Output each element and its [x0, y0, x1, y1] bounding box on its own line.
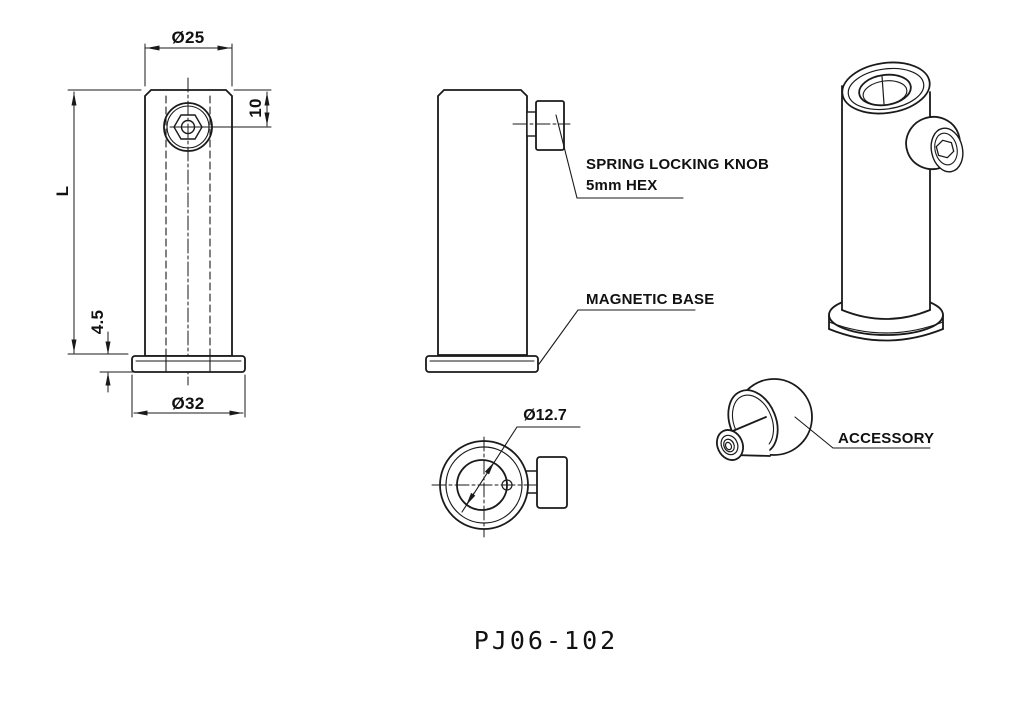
top-view	[432, 427, 580, 537]
dim-post-length: L	[53, 171, 73, 211]
accessory-view	[712, 379, 930, 464]
side-view	[426, 90, 695, 372]
front-view	[68, 44, 271, 417]
dim-base-thickness: 4.5	[88, 300, 108, 344]
callout-accessory: ACCESSORY	[838, 430, 934, 447]
technical-drawing	[0, 0, 1020, 721]
callout-magnetic-base: MAGNETIC BASE	[586, 291, 714, 308]
dim-bore-diameter: Ø12.7	[512, 407, 578, 425]
isometric-view	[829, 57, 967, 340]
dim-post-top-diameter: Ø25	[158, 28, 218, 48]
callout-hex-size: 5mm HEX	[586, 177, 657, 194]
technical-drawing-canvas: Ø25 10 L 4.5 Ø32 Ø12.7 SPRING LOCKING KN…	[0, 0, 1020, 721]
dim-knob-center-offset: 10	[246, 88, 266, 128]
dim-base-diameter: Ø32	[158, 394, 218, 414]
callout-spring-locking-knob: SPRING LOCKING KNOB	[586, 156, 769, 173]
part-number: PJ06-102	[446, 626, 646, 655]
